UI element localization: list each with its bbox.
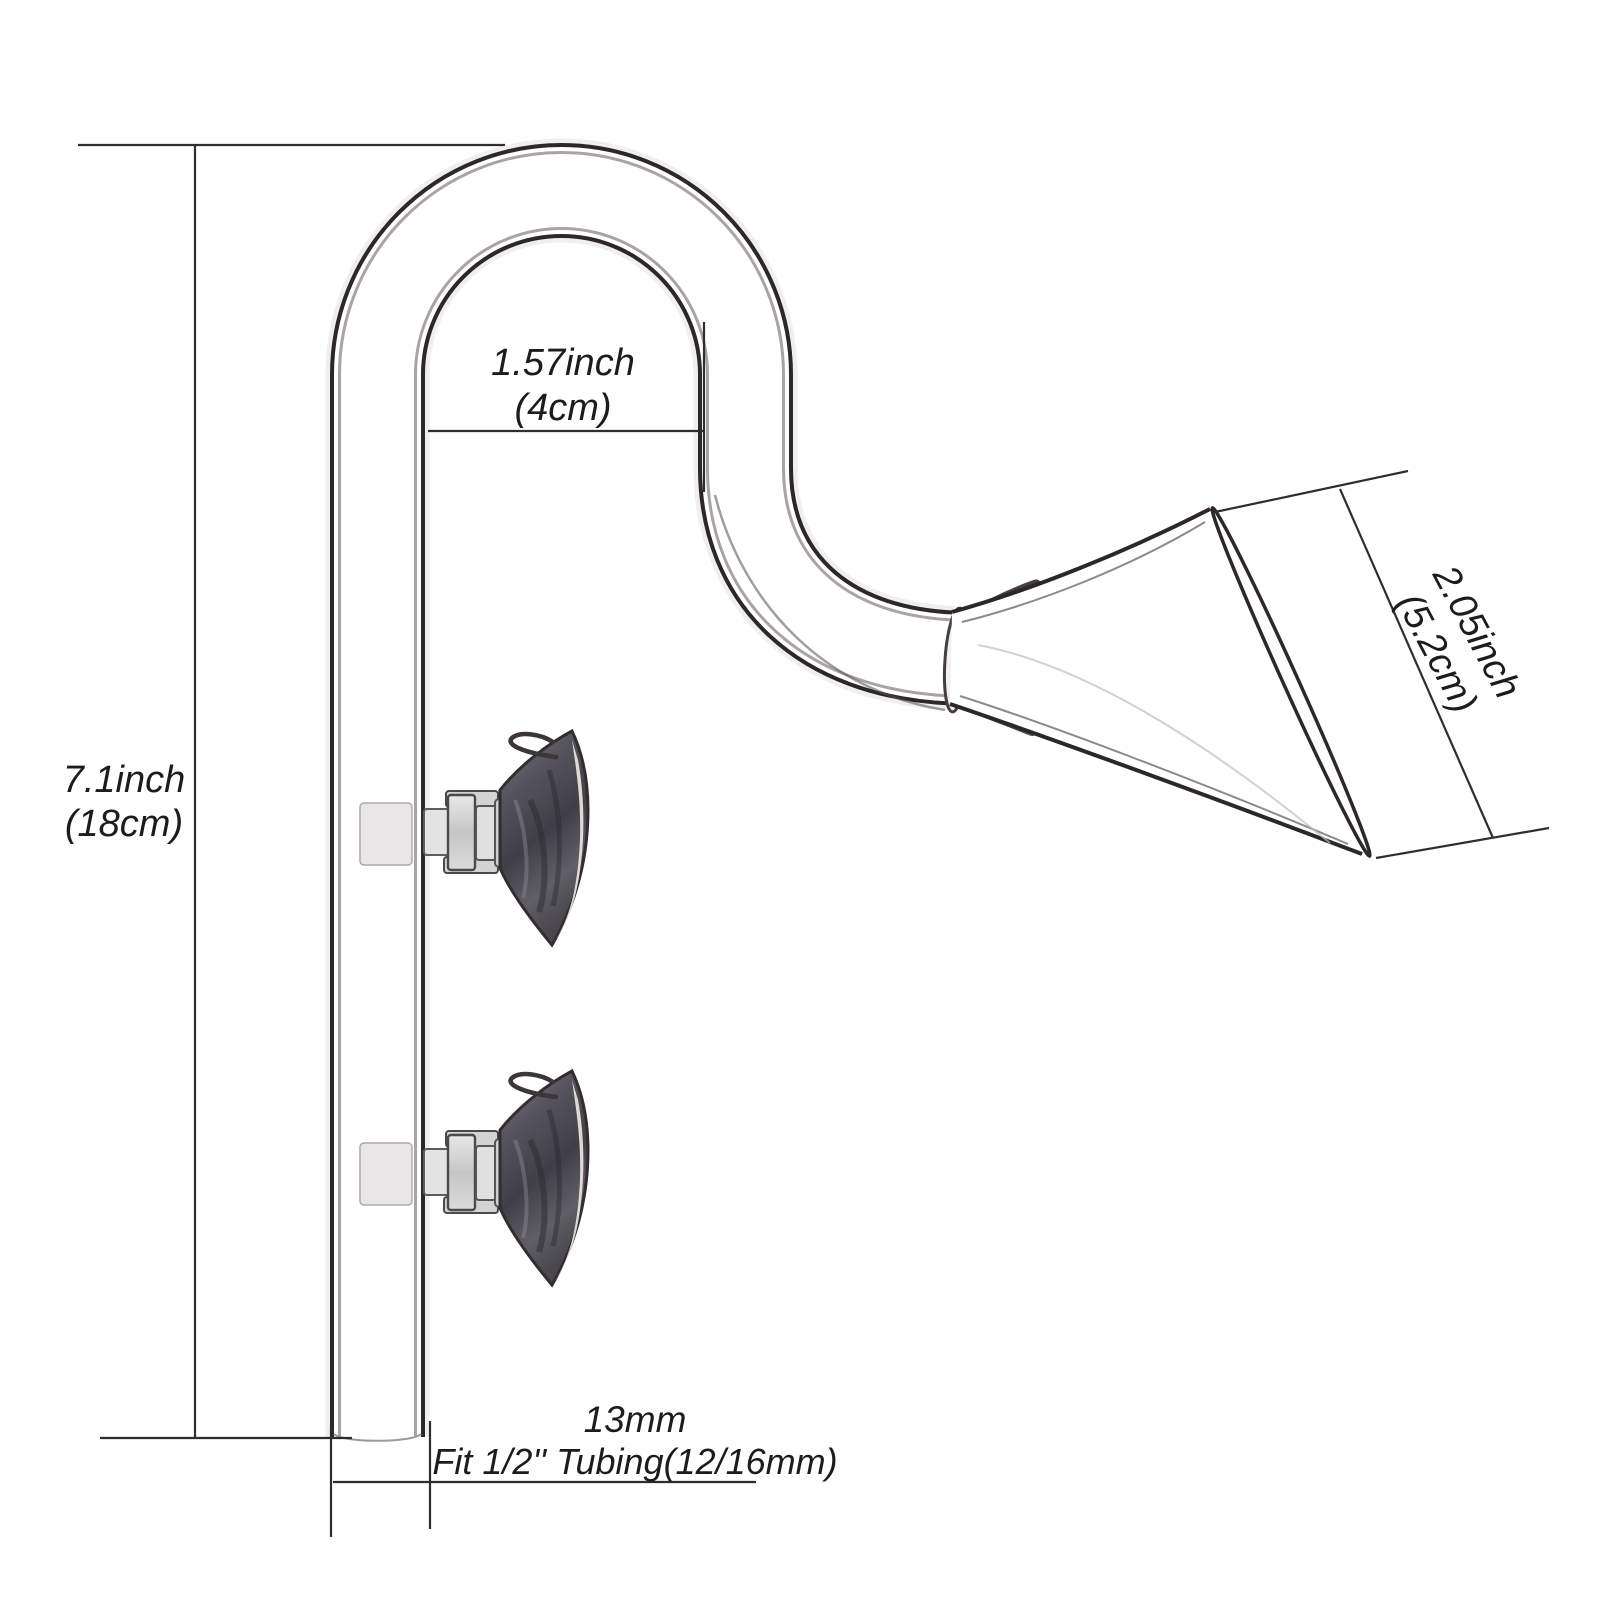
tube-od-value: 13mm	[535, 1399, 735, 1441]
outlet-extension-bottom	[1376, 828, 1549, 858]
height-dimension-label: 7.1inch (18cm)	[38, 758, 210, 846]
height-value-cm: (18cm)	[38, 802, 210, 846]
outlet-extension-top	[1215, 471, 1408, 512]
height-value-inch: 7.1inch	[38, 758, 210, 802]
tubing-fit-value: Fit 1/2'' Tubing(12/16mm)	[335, 1441, 935, 1483]
tubing-fit-label: Fit 1/2'' Tubing(12/16mm)	[335, 1441, 935, 1483]
tube-od-dimension-label: 13mm	[535, 1399, 735, 1441]
lily-pipe-diagram-canvas	[0, 0, 1600, 1600]
clamp-through-glass	[360, 803, 412, 865]
hook-width-dimension-label: 1.57inch (4cm)	[443, 341, 683, 431]
hook-width-value-inch: 1.57inch	[443, 341, 683, 386]
product-dimension-diagram: 7.1inch (18cm) 1.57inch (4cm) 2.05inch (…	[0, 0, 1600, 1600]
hook-width-value-cm: (4cm)	[443, 386, 683, 431]
outlet-trumpet	[941, 505, 1376, 859]
